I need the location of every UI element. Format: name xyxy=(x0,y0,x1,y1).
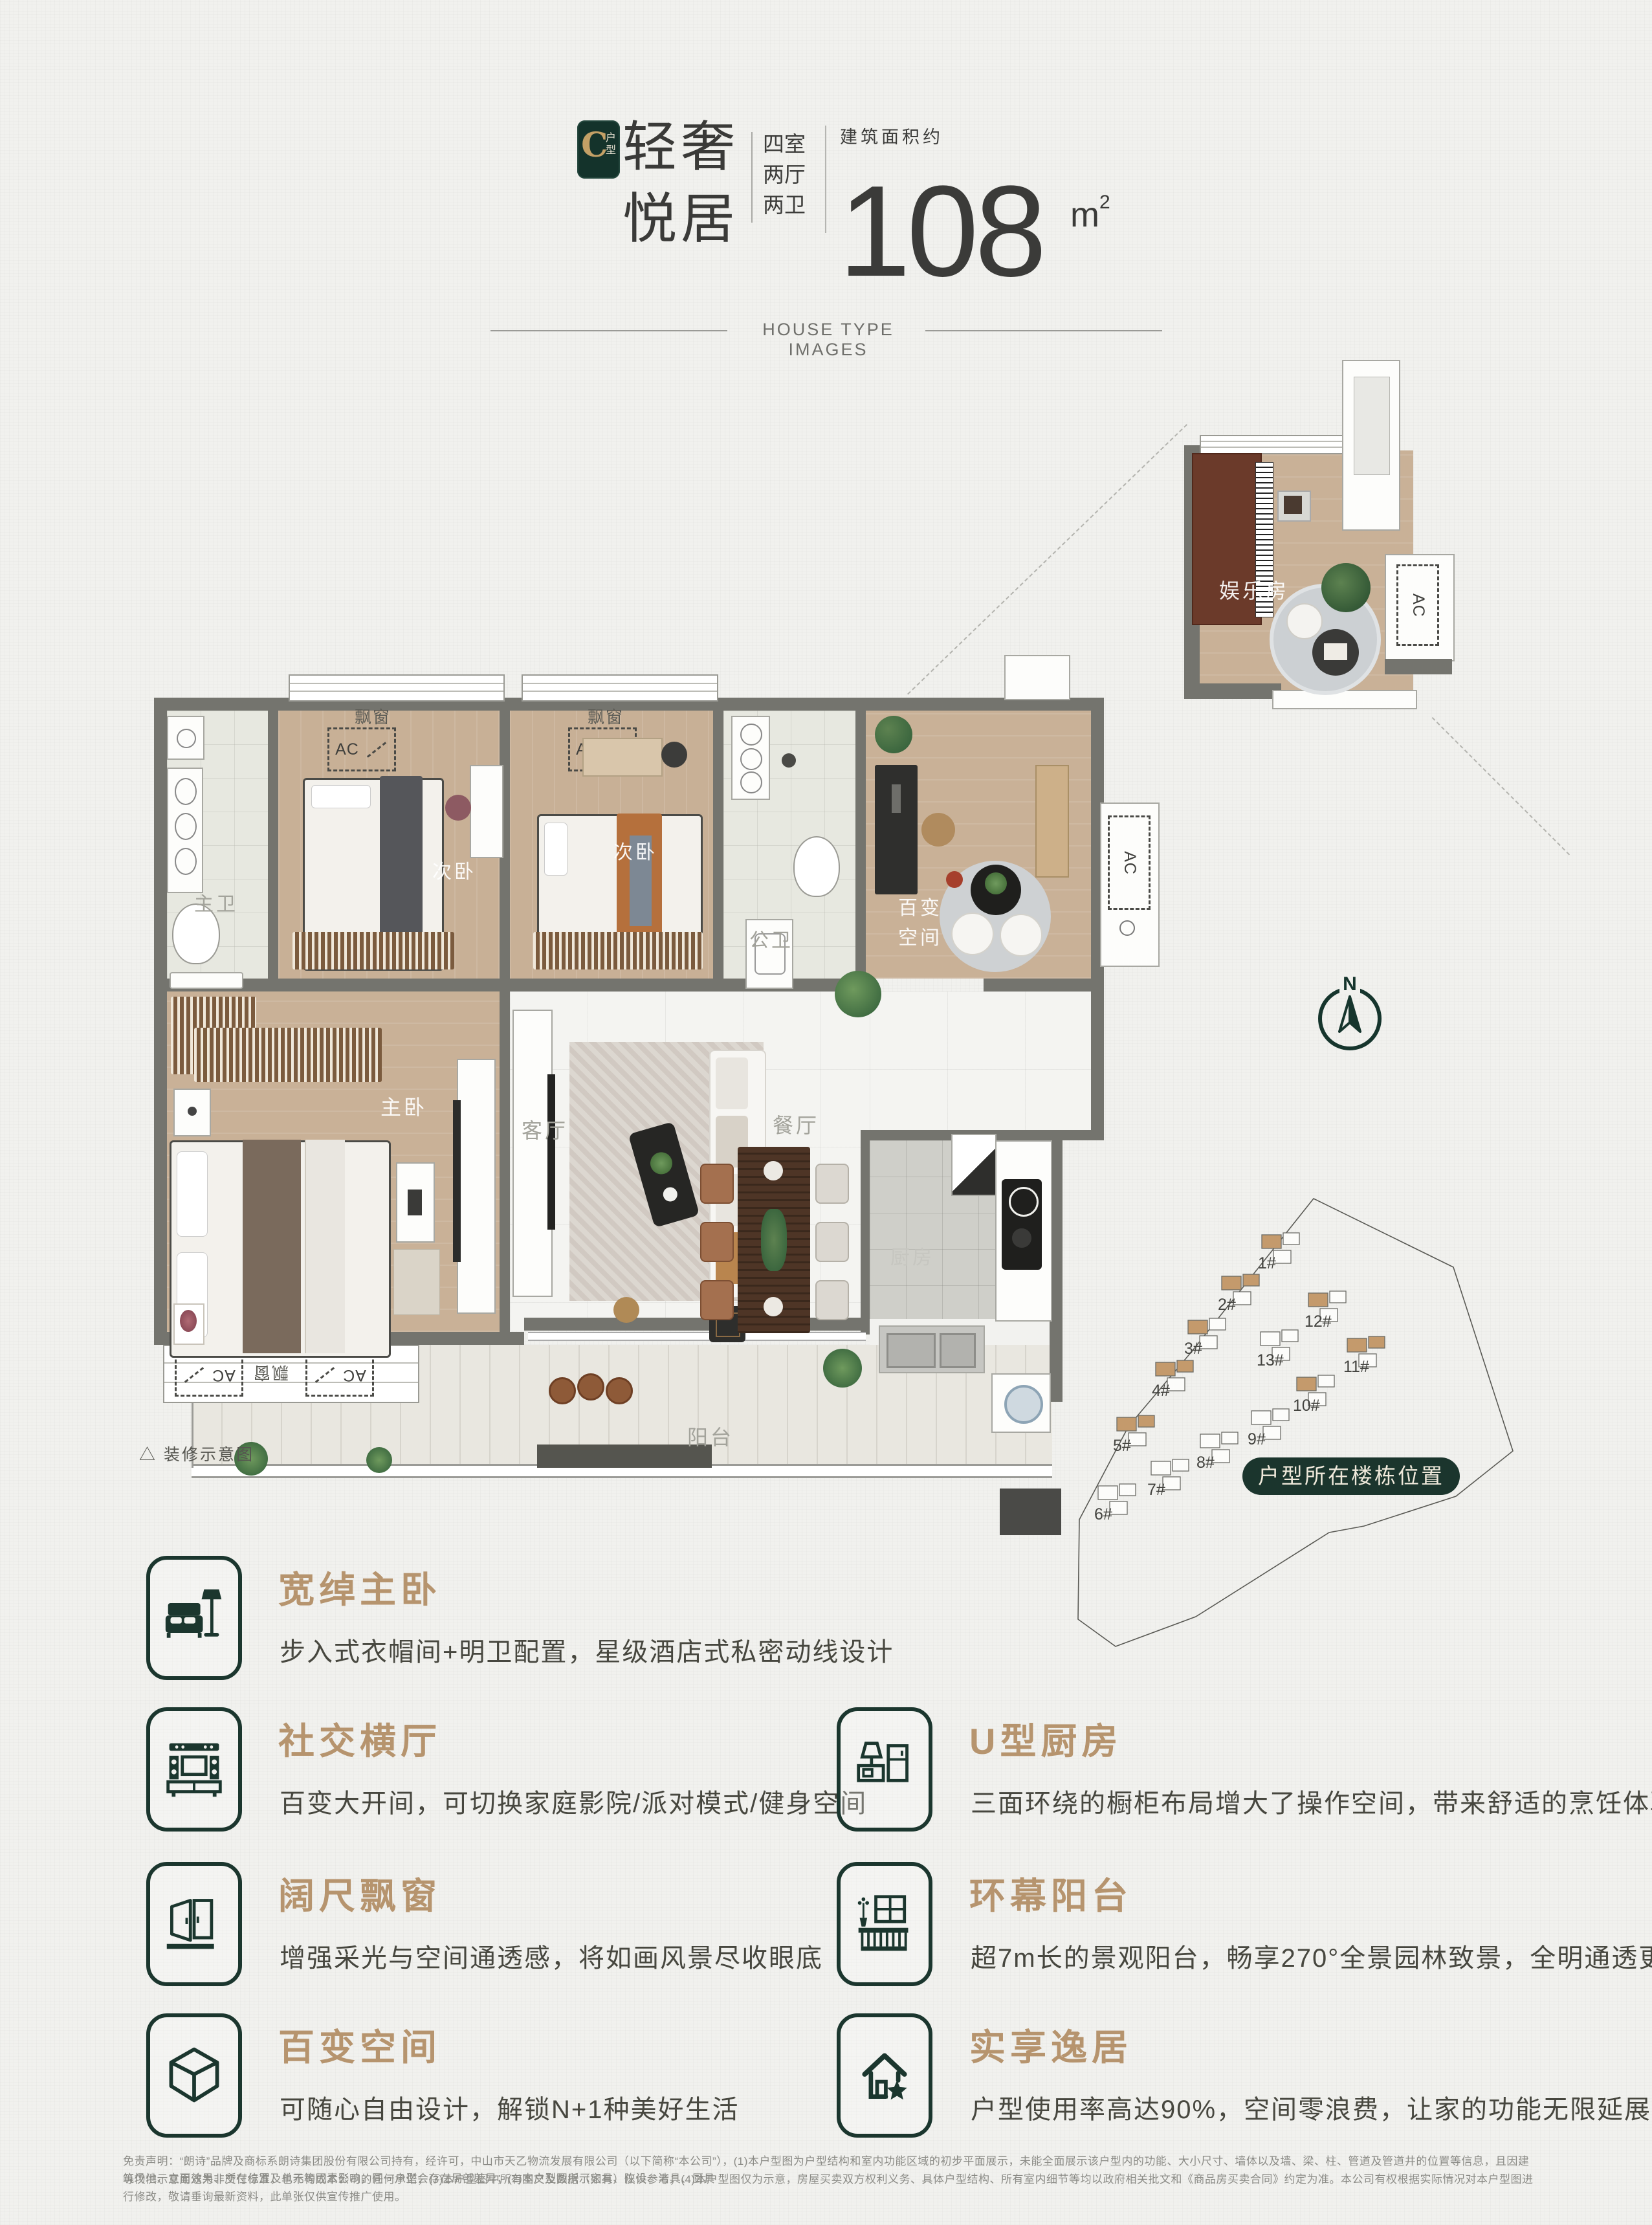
site-building-block xyxy=(1308,1293,1328,1307)
wardrobe xyxy=(194,1028,382,1082)
plant xyxy=(835,971,881,1017)
feature-icon-box xyxy=(837,2013,932,2138)
site-building-block xyxy=(1233,1292,1251,1305)
house-star-icon xyxy=(854,2039,916,2112)
page-title-line1: 轻奢 xyxy=(622,111,739,183)
outdoor-unit xyxy=(1000,1489,1061,1535)
site-building-block xyxy=(1251,1411,1271,1424)
site-building-block xyxy=(1262,1235,1281,1248)
site-building-block xyxy=(1273,1409,1289,1421)
balcony-icon xyxy=(854,1888,916,1960)
plant xyxy=(875,716,912,753)
dresser-knob xyxy=(188,1107,197,1116)
armchair xyxy=(1000,914,1042,957)
site-building-label: 13# xyxy=(1257,1351,1284,1369)
desk-lamp xyxy=(892,784,901,813)
site-building-block xyxy=(1110,1501,1127,1514)
balcony-console xyxy=(537,1445,712,1468)
room-label-master-bath: 主卫 xyxy=(194,888,238,916)
area-unit-m: m xyxy=(1070,195,1099,234)
site-building: 13# xyxy=(1257,1330,1298,1369)
site-building-label: 11# xyxy=(1343,1358,1369,1376)
shower-tray xyxy=(170,972,243,989)
basin xyxy=(740,724,762,746)
wall xyxy=(1184,683,1281,699)
site-building-block xyxy=(1347,1338,1367,1352)
piano-stool xyxy=(1277,491,1311,522)
plant xyxy=(366,1447,392,1473)
site-building-label: 10# xyxy=(1293,1397,1320,1415)
site-building-label: 3# xyxy=(1184,1340,1202,1358)
site-building-block xyxy=(1151,1461,1171,1475)
site-building-label: 8# xyxy=(1196,1454,1215,1472)
room-label-entertainment: 娱乐房 xyxy=(1219,575,1289,604)
site-building-block xyxy=(1156,1362,1175,1376)
decor-note: △ 装修示意图 xyxy=(139,1442,254,1465)
room-label-flex-1: 百变 xyxy=(898,892,942,920)
duvet xyxy=(305,1140,345,1353)
wall xyxy=(268,711,278,991)
feature-desc: 超7m长的景观阳台，畅享270°全景园林致景，全明通透更宜居 xyxy=(971,1937,1652,1975)
area-unit-sup: 2 xyxy=(1099,192,1110,213)
feature-title: 实享逸居 xyxy=(969,2019,1132,2071)
site-building-block xyxy=(1167,1378,1185,1391)
site-building: 10# xyxy=(1293,1375,1334,1415)
table-plate xyxy=(764,1161,783,1180)
plant xyxy=(1321,563,1371,612)
site-building-block xyxy=(1261,1332,1280,1345)
tv-icon xyxy=(163,1733,225,1806)
fridge xyxy=(951,1134,997,1196)
table-plant xyxy=(648,1149,675,1177)
stool xyxy=(577,1373,604,1400)
wall xyxy=(861,1140,870,1334)
ac-niche: AC xyxy=(1100,803,1160,967)
sliding-door xyxy=(528,1332,866,1341)
room-label-guest-bath: 公卫 xyxy=(749,924,793,953)
site-building: 8# xyxy=(1196,1432,1238,1472)
dining-chair xyxy=(700,1222,734,1262)
shower-head xyxy=(782,753,796,768)
site-building-block xyxy=(1177,1360,1193,1372)
washing-machine xyxy=(991,1373,1051,1433)
site-building-block xyxy=(1318,1375,1334,1387)
site-building-label: 5# xyxy=(1113,1437,1131,1455)
type-badge-label: 户型 xyxy=(601,132,617,157)
room-label-kitchen: 厨房 xyxy=(890,1241,934,1270)
header: C 户型 轻奢 悦居 四室 两厅 两卫 建筑面积约 108 m2 xyxy=(0,0,1652,304)
flower xyxy=(180,1310,197,1332)
corridor-window xyxy=(1354,377,1390,475)
wall xyxy=(1385,659,1452,674)
table-centerpiece xyxy=(761,1209,787,1271)
site-building-block xyxy=(1117,1417,1136,1431)
section-divider: HOUSE TYPE IMAGES xyxy=(0,316,1652,355)
dashed-connector-1 xyxy=(907,424,1187,694)
pillow xyxy=(544,823,567,876)
washer-drum xyxy=(1004,1385,1043,1424)
entertainment-bottom-sill xyxy=(1272,690,1417,709)
cube-icon xyxy=(163,2039,225,2112)
feature-desc: 户型使用率高达90%，空间零浪费，让家的功能无限延展 xyxy=(971,2088,1651,2126)
washer xyxy=(167,716,204,760)
poster-page: C 户型 轻奢 悦居 四室 两厅 两卫 建筑面积约 108 m2 HOUSE T… xyxy=(0,0,1652,2225)
rug-bench xyxy=(533,932,703,969)
feature-icon-box xyxy=(146,1862,242,1986)
vanity xyxy=(731,716,770,800)
site-building: 4# xyxy=(1152,1360,1193,1400)
stool xyxy=(549,1377,576,1404)
dining-chair xyxy=(815,1164,849,1204)
wall xyxy=(500,991,510,1345)
site-building-block xyxy=(1222,1276,1241,1290)
site-building-block xyxy=(1119,1484,1136,1496)
duvet-runner xyxy=(243,1140,301,1353)
site-building: 5# xyxy=(1113,1415,1154,1455)
wall xyxy=(154,698,167,1345)
table-dish xyxy=(661,1186,679,1203)
ac-label: AC xyxy=(212,1366,236,1385)
dresser xyxy=(173,1089,211,1136)
site-building-block xyxy=(1200,1434,1220,1448)
entry-landing xyxy=(1004,655,1070,700)
ac-box: AC xyxy=(1108,815,1151,910)
ac-slash xyxy=(315,1367,335,1384)
disclaimer-line2: 等仅供示意用途为非交付标准，也不构成本公司的任何承诺；(3)本户型图中所有图文及… xyxy=(123,2171,1534,2206)
washer-drum xyxy=(177,729,196,748)
site-building-block xyxy=(1129,1433,1146,1446)
ac-label: AC xyxy=(1119,851,1138,875)
site-building: 12# xyxy=(1305,1291,1346,1331)
basin xyxy=(740,771,762,793)
ac-label: AC xyxy=(1408,593,1427,617)
chair xyxy=(445,795,471,821)
room-label-flex-2: 空间 xyxy=(898,922,942,950)
divider-line-right xyxy=(925,330,1162,331)
bench-remote xyxy=(408,1190,422,1215)
flower-pot xyxy=(173,1303,204,1345)
dining-chair xyxy=(815,1222,849,1262)
room-spec: 四室 两厅 两卫 xyxy=(763,129,809,221)
bed xyxy=(537,814,703,950)
feature-desc: 增强采光与空间通透感，将如画风景尽收眼底 xyxy=(280,1937,823,1975)
site-building-label: 1# xyxy=(1258,1254,1276,1272)
entertainment-window xyxy=(1200,435,1345,454)
sink-bowl xyxy=(940,1333,976,1368)
site-building-block xyxy=(1138,1415,1154,1427)
ac-label: AC xyxy=(342,1366,366,1385)
site-building-block xyxy=(1098,1486,1118,1500)
chair xyxy=(921,813,955,847)
site-building-block xyxy=(1209,1318,1226,1330)
feature-icon-box xyxy=(146,1707,242,1832)
room-label-balcony: 阳台 xyxy=(687,1421,734,1451)
kitchen-sink xyxy=(879,1325,985,1373)
room-spec-line2: 两厅 xyxy=(763,160,809,190)
ac-box: AC xyxy=(305,1354,374,1397)
dining-chair xyxy=(815,1280,849,1320)
site-building: 7# xyxy=(1147,1459,1189,1499)
divider-line-left xyxy=(490,330,727,331)
ac-niche: AC xyxy=(1385,554,1455,661)
site-building-block xyxy=(1283,1233,1299,1245)
stove-burner xyxy=(1009,1187,1039,1217)
ac-slash xyxy=(184,1367,204,1384)
bay-window-label: 飘窗 xyxy=(252,1362,289,1386)
basin xyxy=(740,748,762,770)
feature-desc: 可随心自由设计，解锁N+1种美好生活 xyxy=(280,2088,740,2126)
entertainment-corridor xyxy=(1342,360,1400,531)
stool-cloth xyxy=(1284,496,1302,514)
site-building-label: 4# xyxy=(1152,1382,1170,1400)
window-icon xyxy=(163,1888,225,1960)
ac-slash xyxy=(367,742,386,758)
dashed-connector-2 xyxy=(1432,717,1570,856)
feature-icon-box xyxy=(837,1862,932,1986)
feature-icon-box xyxy=(146,1556,242,1680)
book xyxy=(1324,643,1347,660)
room-label-master: 主卧 xyxy=(380,1091,427,1121)
feature-desc: 步入式衣帽间+明卫配置，星级酒店式私密动线设计 xyxy=(280,1631,894,1668)
wall xyxy=(713,711,723,991)
tv xyxy=(547,1074,555,1230)
site-building-block xyxy=(1273,1250,1291,1263)
feature-icon-box xyxy=(837,1707,932,1832)
site-building: 9# xyxy=(1248,1409,1289,1448)
room-label-dining: 餐厅 xyxy=(773,1109,819,1139)
compass-icon: N xyxy=(1312,972,1387,1056)
header-divider-1 xyxy=(751,132,753,223)
compass: N xyxy=(1312,972,1387,1056)
page-title: 轻奢 悦居 xyxy=(622,111,739,255)
area-value: 108 xyxy=(839,120,1043,236)
room-spec-line1: 四室 xyxy=(763,129,809,160)
site-building-block xyxy=(1282,1330,1298,1342)
feature-desc: 百变大开间，可切换家庭影院/派对模式/健身空间 xyxy=(280,1782,867,1820)
vanity xyxy=(167,768,203,893)
page-title-line2: 悦居 xyxy=(622,183,739,255)
site-map: 1#2#12#3#13#11#4#10#5#9#8#7#6# 户型所在楼栋位置 xyxy=(1068,1197,1521,1650)
side-table xyxy=(1286,603,1323,639)
armchair xyxy=(951,913,994,955)
sink-bowl xyxy=(887,1333,936,1368)
wall xyxy=(855,711,866,979)
feature-title: 阔尺飘窗 xyxy=(278,1867,441,1920)
header-divider-2 xyxy=(825,126,826,233)
site-building-block xyxy=(1222,1432,1238,1444)
table-plant xyxy=(985,872,1007,894)
site-building: 2# xyxy=(1218,1274,1259,1314)
site-building-label: 6# xyxy=(1094,1505,1112,1523)
feature-title: 社交横厅 xyxy=(278,1712,441,1765)
stool xyxy=(606,1377,633,1404)
site-building-block xyxy=(1163,1477,1180,1490)
cabinet xyxy=(1035,765,1069,878)
dining-chair xyxy=(700,1164,734,1204)
room-label-living: 客厅 xyxy=(522,1114,568,1144)
tv-cabinet xyxy=(457,1059,496,1314)
bay-window-bedroom3 xyxy=(522,674,718,702)
area-unit: m2 xyxy=(1070,192,1110,235)
site-building-block xyxy=(1263,1426,1281,1439)
room-label-bedroom2: 次卧 xyxy=(432,856,476,884)
basin xyxy=(175,813,197,840)
site-building-block xyxy=(1212,1450,1229,1463)
bay-window-bedroom2 xyxy=(289,674,505,702)
dining-table xyxy=(738,1147,810,1333)
site-building-label: 2# xyxy=(1218,1296,1236,1314)
site-building-label: 9# xyxy=(1248,1430,1266,1448)
basin xyxy=(175,778,197,805)
site-building-block xyxy=(1369,1336,1385,1348)
bay-window-label: 飘窗 xyxy=(588,704,624,728)
table-plate xyxy=(764,1297,783,1316)
sofa-cushion xyxy=(716,1057,748,1109)
floor-cushion xyxy=(1312,629,1359,676)
ac-box: AC xyxy=(327,727,396,771)
pillow xyxy=(311,785,371,808)
room-entry-floor xyxy=(870,991,1091,1130)
drain-circle xyxy=(1119,920,1135,936)
site-map-svg: 1#2#12#3#13#11#4#10#5#9#8#7#6# 户型所在楼栋位置 xyxy=(1068,1197,1521,1650)
kitchen-icon xyxy=(854,1733,916,1806)
site-building-block xyxy=(1188,1320,1207,1334)
bay-window-label: 飘窗 xyxy=(355,704,391,728)
toilet xyxy=(793,836,840,897)
ac-box: AC xyxy=(1396,564,1439,646)
bed-throw xyxy=(393,1249,440,1315)
plant xyxy=(823,1349,862,1388)
site-building-block xyxy=(1297,1377,1316,1391)
stove-burner xyxy=(1012,1228,1031,1248)
pillow xyxy=(177,1151,208,1237)
compass-n: N xyxy=(1343,973,1357,995)
site-badge-label: 户型所在楼栋位置 xyxy=(1258,1464,1444,1488)
site-building: 3# xyxy=(1184,1318,1226,1358)
room-spec-line3: 两卫 xyxy=(763,190,809,221)
desk xyxy=(470,765,503,858)
site-building: 1# xyxy=(1258,1233,1299,1272)
site-building-block xyxy=(1173,1459,1189,1471)
ac-label: AC xyxy=(335,740,359,759)
feature-title: U型厨房 xyxy=(969,1712,1122,1765)
tv-console xyxy=(512,1010,553,1297)
feature-title: 百变空间 xyxy=(278,2019,441,2071)
feature-title: 环幕阳台 xyxy=(969,1867,1132,1920)
site-building-block xyxy=(1243,1274,1259,1286)
stove xyxy=(1002,1179,1042,1270)
basin xyxy=(175,848,197,875)
site-building: 11# xyxy=(1343,1336,1385,1376)
tv xyxy=(453,1100,461,1262)
site-building-label: 12# xyxy=(1305,1312,1332,1331)
site-building-block xyxy=(1200,1336,1217,1349)
feature-title: 宽绰主卧 xyxy=(278,1561,441,1613)
feature-desc: 三面环绕的橱柜布局增大了操作空间，带来舒适的烹饪体验 xyxy=(971,1782,1652,1820)
site-building-label: 7# xyxy=(1147,1481,1165,1499)
desk xyxy=(582,738,663,777)
wall xyxy=(984,979,1104,991)
ac-box: AC xyxy=(175,1354,243,1397)
accent-cushion xyxy=(946,871,963,888)
bedside-bench xyxy=(396,1162,435,1243)
feature-icon-box xyxy=(146,2013,242,2138)
site-building-block xyxy=(1330,1291,1346,1303)
flex-desk xyxy=(875,765,918,894)
site-building: 6# xyxy=(1094,1484,1136,1523)
rug-bench xyxy=(292,932,454,969)
type-badge: C 户型 xyxy=(577,120,620,179)
chair xyxy=(661,742,687,768)
stool xyxy=(613,1297,639,1323)
round-table xyxy=(971,865,1021,915)
bed-icon xyxy=(163,1582,225,1654)
room-label-bedroom3: 次卧 xyxy=(613,836,657,865)
wall xyxy=(1091,979,1104,1140)
dining-chair xyxy=(700,1280,734,1320)
